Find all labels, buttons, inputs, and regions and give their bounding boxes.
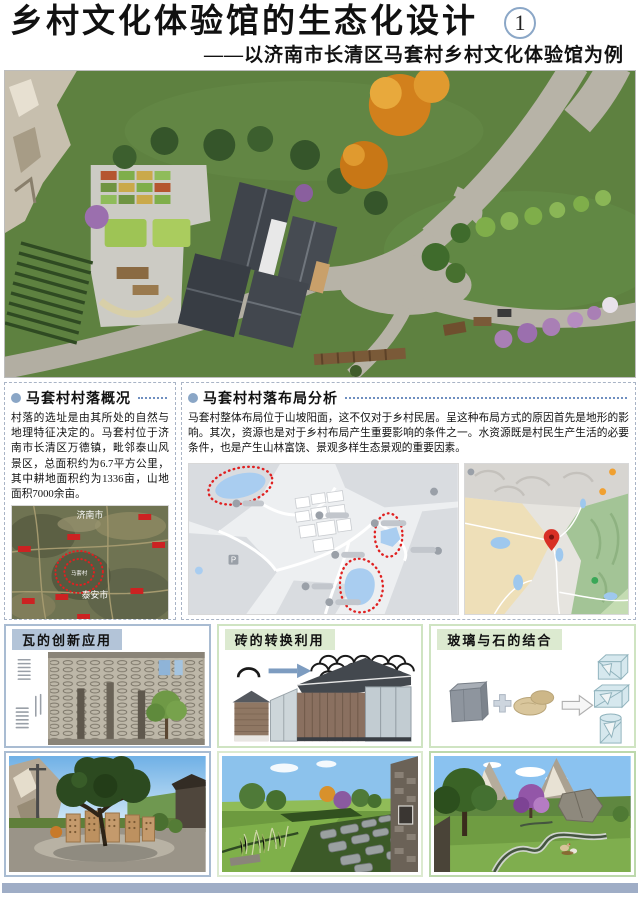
result-arrow-icon (563, 696, 593, 715)
materials-row: 瓦的创新应用 (4, 624, 636, 748)
brick-building-render (232, 658, 411, 741)
glass-block (451, 682, 489, 722)
terrain-map-svg (465, 464, 628, 614)
water-schematic-map-image: P (188, 463, 459, 615)
bullet-icon (188, 393, 198, 403)
aerial-render-svg (5, 71, 635, 377)
layout-analysis-body: 马套村整体布局位于山坡阳面，这不仅对于乡村民居。呈这种布局方式的原因首先是地形的… (188, 411, 629, 457)
tile-stack-diagram-svg (10, 652, 48, 745)
poster-header: 乡村文化体验馆的生态化设计 1 ——以济南市长清区马套村乡村文化体验馆为例 (2, 0, 638, 67)
satellite-map-svg: 济南市 马套村 泰安市 (12, 506, 168, 620)
photos-row (4, 751, 636, 877)
glass-stone-module-3 (601, 714, 622, 743)
tile-stack-diagrams (10, 652, 48, 745)
tile-wall-render-image (48, 652, 205, 745)
aerial-render-image (4, 70, 636, 378)
water-schematic-map-svg: P (189, 464, 458, 614)
middle-section: 马套村村落概况 村落的选址是由其所处的自然与地理特征决定的。马套村位于济南市长清… (4, 382, 636, 620)
tile-wall-svg (48, 652, 205, 745)
overview-body: 村落的选址是由其所处的自然与地理特征决定的。马套村位于济南市长清区万德镇，毗邻泰… (11, 411, 169, 502)
tile-panel: 瓦的创新应用 (4, 624, 211, 748)
bullet-icon (11, 393, 21, 403)
brick-diagram-svg (223, 652, 418, 745)
single-tile-arc (238, 668, 259, 677)
page-title: 乡村文化体验馆的生态化设计 (10, 4, 478, 42)
dotted-leader (345, 397, 627, 399)
page-number-badge: 1 (504, 7, 536, 39)
terrain-map-image (464, 463, 629, 615)
parking-marker-label: P (231, 555, 236, 564)
stones (514, 691, 554, 715)
transform-arrow-icon (268, 664, 311, 679)
photo-tree-courtyard (4, 751, 211, 877)
photo-garden-path-svg (222, 756, 419, 872)
glass-stone-module-1 (599, 655, 628, 679)
photo-meadow-stream (429, 751, 636, 877)
layout-maps-row: P (188, 460, 629, 615)
glass-stone-diagram-svg (435, 652, 630, 745)
overview-title: 马套村村落概况 (26, 388, 131, 408)
photo-tree-courtyard-svg (9, 756, 206, 872)
tile-panel-content (6, 652, 209, 748)
glass-panel-content (431, 652, 634, 748)
satellite-map-image: 济南市 马套村 泰安市 (11, 505, 169, 620)
map-label-taian: 泰安市 (82, 589, 109, 600)
overview-panel: 马套村村落概况 村落的选址是由其所处的自然与地理特征决定的。马套村位于济南市长清… (4, 382, 176, 620)
poster-page: 乡村文化体验馆的生态化设计 1 ——以济南市长清区马套村乡村文化体验馆为例 (0, 0, 640, 905)
layout-analysis-header: 马套村村落布局分析 (188, 388, 629, 408)
page-subtitle: ——以济南市长清区马套村乡村文化体验馆为例 (10, 40, 630, 67)
plus-icon (494, 695, 511, 712)
brick-panel-content (219, 652, 422, 748)
title-row: 乡村文化体验馆的生态化设计 1 (10, 4, 630, 42)
map-label-jinan: 济南市 (77, 509, 104, 520)
glass-panel: 玻璃与石的结合 (429, 624, 636, 748)
photo-garden-path (217, 751, 424, 877)
tile-panel-title: 瓦的创新应用 (12, 629, 122, 650)
layout-analysis-title: 马套村村落布局分析 (203, 388, 338, 408)
map-label-village: 马套村 (71, 569, 88, 577)
glass-panel-title: 玻璃与石的结合 (437, 629, 562, 650)
layout-analysis-panel: 马套村村落布局分析 马套村整体布局位于山坡阳面，这不仅对于乡村民居。呈这种布局方… (181, 382, 636, 620)
glass-stone-module-2 (595, 685, 629, 707)
dotted-leader (138, 397, 167, 399)
brick-panel-title: 砖的转换利用 (225, 629, 335, 650)
overview-header: 马套村村落概况 (11, 388, 169, 408)
brick-panel: 砖的转换利用 (217, 624, 424, 748)
footer-accent-bar (2, 883, 638, 893)
photo-meadow-stream-svg (434, 756, 631, 872)
